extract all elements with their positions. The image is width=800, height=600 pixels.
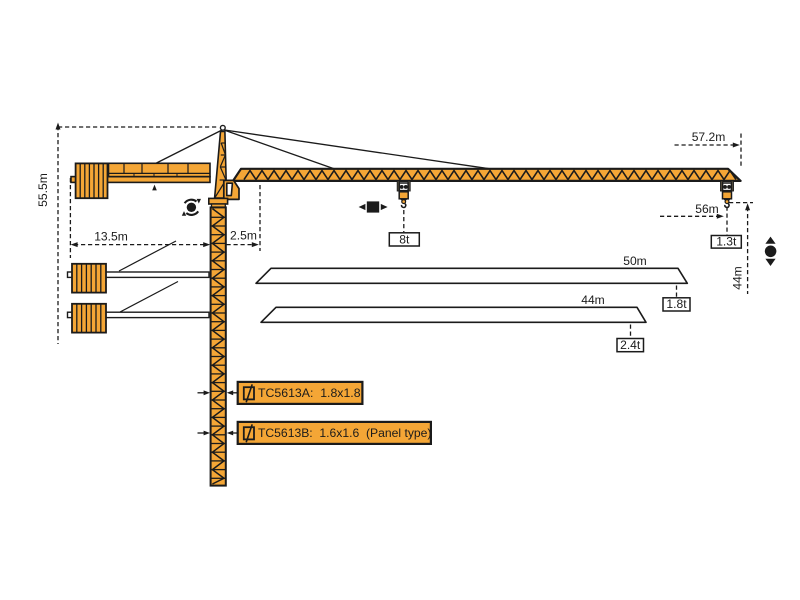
- svg-text:55.5m: 55.5m: [36, 173, 50, 207]
- svg-text:1.8t: 1.8t: [666, 297, 687, 311]
- svg-text:TC5613B: 1.6x1.6 (Panel type: TC5613B: 1.6x1.6 (Panel type): [258, 426, 431, 440]
- svg-text:56m: 56m: [695, 202, 719, 216]
- svg-text:44m: 44m: [581, 293, 605, 307]
- svg-text:8t: 8t: [399, 232, 410, 246]
- svg-text:57.2m: 57.2m: [692, 130, 726, 144]
- svg-text:TC5613A: 1.8x1.8: TC5613A: 1.8x1.8: [258, 386, 361, 400]
- svg-text:1.3t: 1.3t: [716, 234, 737, 248]
- svg-text:44m: 44m: [731, 266, 745, 290]
- svg-text:13.5m: 13.5m: [94, 230, 128, 244]
- svg-text:50m: 50m: [623, 254, 647, 268]
- svg-text:2.5m: 2.5m: [230, 229, 257, 243]
- svg-text:2.4t: 2.4t: [620, 338, 641, 352]
